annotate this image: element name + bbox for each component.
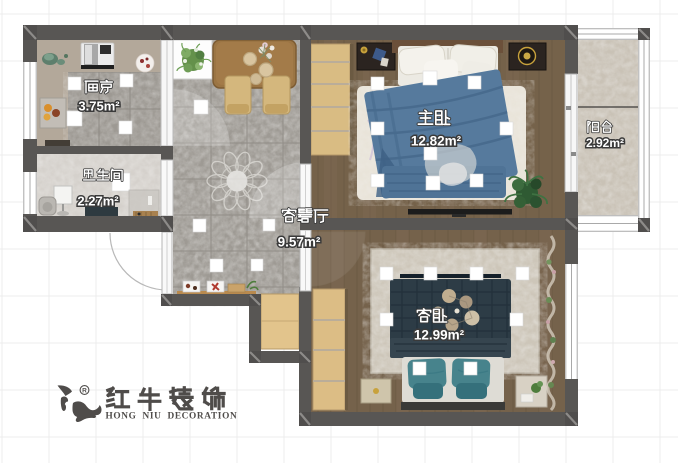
svg-text:3.75m²: 3.75m² <box>78 99 120 114</box>
svg-text:2.92m²: 2.92m² <box>586 136 624 150</box>
svg-text:12.99m²: 12.99m² <box>414 328 465 343</box>
svg-text:2.27m²: 2.27m² <box>77 194 119 209</box>
svg-text:R: R <box>82 388 87 395</box>
svg-text:HONG NIU DECORATION: HONG NIU DECORATION <box>106 412 238 422</box>
svg-text:9.57m²: 9.57m² <box>278 235 321 250</box>
svg-text:12.82m²: 12.82m² <box>411 134 462 149</box>
